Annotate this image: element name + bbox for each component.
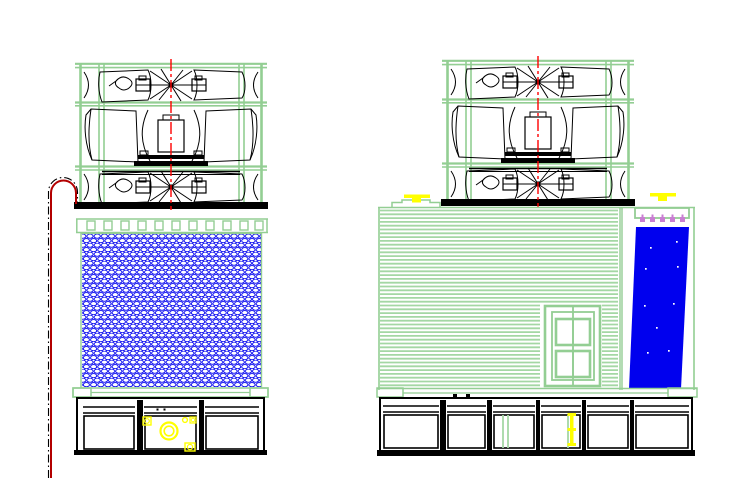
eliminator-slot — [104, 221, 112, 230]
pump-icon — [143, 409, 196, 452]
droplet-dot — [677, 266, 679, 268]
fan-assembly-right — [441, 56, 635, 207]
left-bays — [83, 400, 259, 450]
right-bays — [383, 400, 689, 450]
bay-mullion — [582, 400, 586, 450]
distribution-bay — [622, 193, 694, 390]
cooling-tower-drawing — [0, 0, 749, 499]
bay-panel — [206, 416, 258, 449]
spray-nozzle-stem — [682, 215, 684, 218]
fan-assembly-left — [74, 59, 268, 210]
eliminator-slot — [87, 221, 95, 230]
right-basin-cabinets — [377, 394, 695, 456]
eliminator-slot — [138, 221, 146, 230]
spray-nozzle — [660, 217, 665, 222]
spray-nozzle-stem — [662, 215, 664, 218]
bay-panel — [494, 415, 534, 448]
bay-mullion — [536, 400, 540, 450]
bay-panel — [588, 415, 628, 448]
spray-nozzle — [670, 217, 675, 222]
cad-canvas — [0, 0, 749, 499]
bay-mullion — [440, 400, 446, 450]
eliminator-slot — [255, 221, 263, 230]
roof-vent-left — [392, 195, 440, 209]
roof-vent-right — [650, 193, 676, 201]
spray-nozzle — [680, 217, 685, 222]
eliminator-slot — [189, 221, 197, 230]
bay-mullion — [630, 400, 634, 450]
eliminator-slots — [87, 221, 263, 230]
bay-panel — [145, 416, 196, 449]
bay-panel — [448, 415, 485, 448]
droplet-dot — [644, 305, 646, 307]
access-door — [540, 303, 602, 389]
bay-mullion — [199, 400, 204, 450]
droplet-dot — [676, 241, 678, 243]
fill-media-hatch — [81, 233, 262, 388]
eliminator-slot — [155, 221, 163, 230]
bay-mullion — [137, 400, 143, 450]
droplet-dot — [650, 247, 652, 249]
left-sill — [73, 388, 268, 397]
left-tower-front-elevation — [49, 59, 269, 478]
droplet-dot — [647, 352, 649, 354]
eliminator-band — [76, 219, 268, 233]
spray-nozzle-stem — [672, 215, 674, 218]
droplet-dot — [656, 327, 658, 329]
bay-pipes — [503, 415, 568, 448]
eliminator-slot — [206, 221, 214, 230]
bay-panel — [84, 416, 134, 449]
water-column — [629, 227, 689, 389]
eliminator-slot — [121, 221, 129, 230]
droplet-dot — [673, 303, 675, 305]
spray-nozzle — [650, 217, 655, 222]
spray-nozzle — [640, 217, 645, 222]
bay-mullion — [487, 400, 492, 450]
right-sill — [377, 388, 697, 397]
spray-nozzle-stem — [652, 215, 654, 218]
right-tower-side-elevation — [377, 56, 697, 456]
left-basin-cabinets — [74, 398, 267, 455]
eliminator-slot — [172, 221, 180, 230]
droplet-dot — [645, 268, 647, 270]
eliminator-slot — [240, 221, 248, 230]
spray-nozzle-stem — [642, 215, 644, 218]
eliminator-slot — [223, 221, 231, 230]
bay-panel — [636, 415, 688, 448]
riser-pipe — [49, 178, 78, 479]
droplet-dot — [668, 350, 670, 352]
bay-panel — [384, 415, 438, 448]
